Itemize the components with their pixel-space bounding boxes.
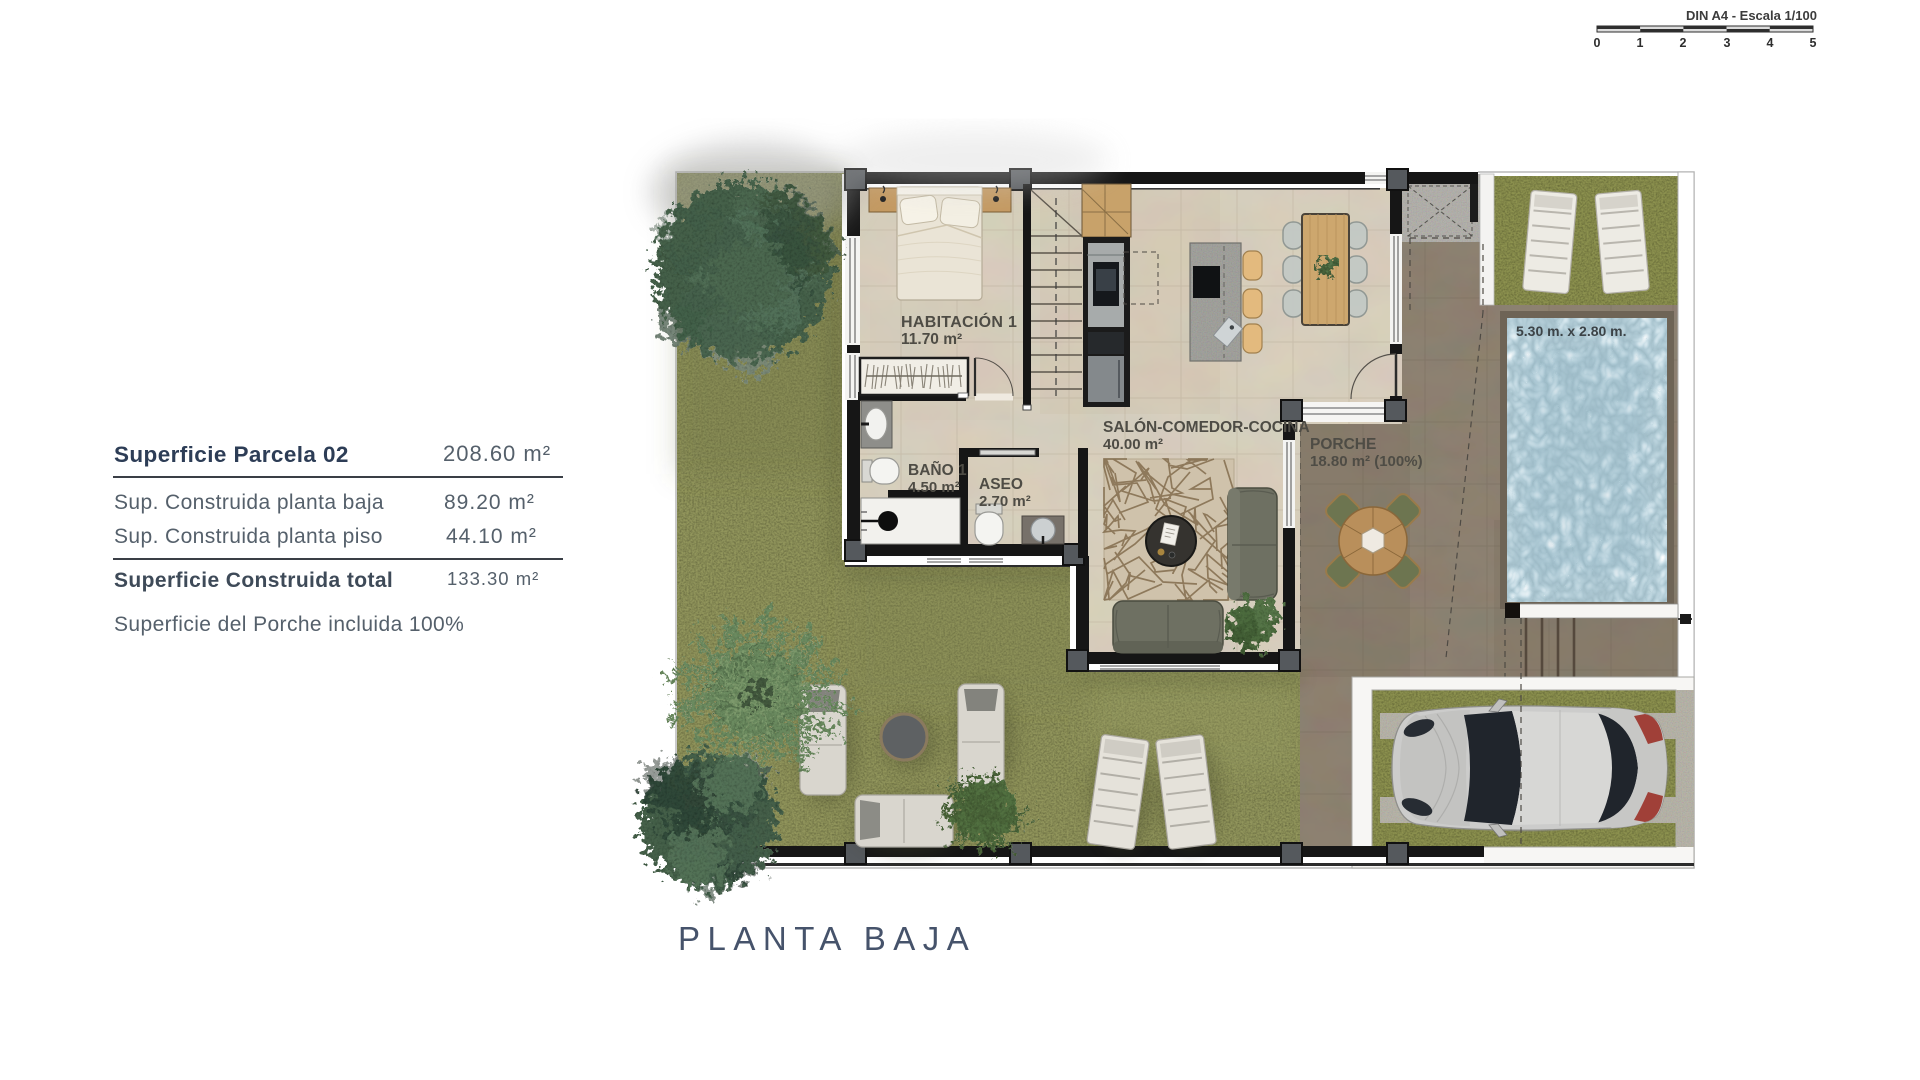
svg-text:DIN A4 - Escala 1/100: DIN A4 - Escala 1/100 (1686, 8, 1817, 23)
svg-text:Sup. Construida planta baja: Sup. Construida planta baja (114, 491, 384, 514)
svg-text:PORCHE: PORCHE (1310, 436, 1376, 453)
svg-text:4: 4 (1767, 36, 1774, 50)
svg-text:Superficie del Porche incluida: Superficie del Porche incluida 100% (114, 613, 464, 636)
svg-text:1: 1 (1637, 36, 1644, 50)
svg-text:HABITACIÓN 1: HABITACIÓN 1 (901, 312, 1017, 331)
svg-text:2.70 m²: 2.70 m² (979, 493, 1031, 510)
svg-text:5.30 m. x 2.80 m.: 5.30 m. x 2.80 m. (1516, 323, 1627, 339)
svg-text:BAÑO 1: BAÑO 1 (908, 461, 967, 479)
svg-text:Sup. Construida planta piso: Sup. Construida planta piso (114, 525, 383, 548)
svg-text:4.50 m²: 4.50 m² (908, 479, 960, 496)
svg-text:0: 0 (1594, 36, 1601, 50)
svg-text:Superficie Parcela 02: Superficie Parcela 02 (114, 442, 349, 467)
svg-text:11.70 m²: 11.70 m² (901, 331, 962, 348)
svg-text:5: 5 (1810, 36, 1817, 50)
svg-text:44.10 m²: 44.10 m² (446, 525, 537, 548)
svg-text:ASEO: ASEO (979, 476, 1023, 493)
svg-text:3: 3 (1724, 36, 1731, 50)
svg-text:18.80 m² (100%): 18.80 m² (100%) (1310, 453, 1423, 470)
svg-text:2: 2 (1680, 36, 1687, 50)
svg-text:Superficie Construida total: Superficie Construida total (114, 569, 393, 592)
svg-text:208.60 m²: 208.60 m² (443, 441, 551, 466)
svg-text:133.30 m²: 133.30 m² (447, 568, 539, 589)
svg-text:SALÓN-COMEDOR-COCINA: SALÓN-COMEDOR-COCINA (1103, 418, 1310, 436)
svg-text:40.00 m²: 40.00 m² (1103, 436, 1163, 453)
svg-text:89.20 m²: 89.20 m² (444, 491, 535, 514)
svg-text:PLANTA BAJA: PLANTA BAJA (678, 920, 976, 957)
